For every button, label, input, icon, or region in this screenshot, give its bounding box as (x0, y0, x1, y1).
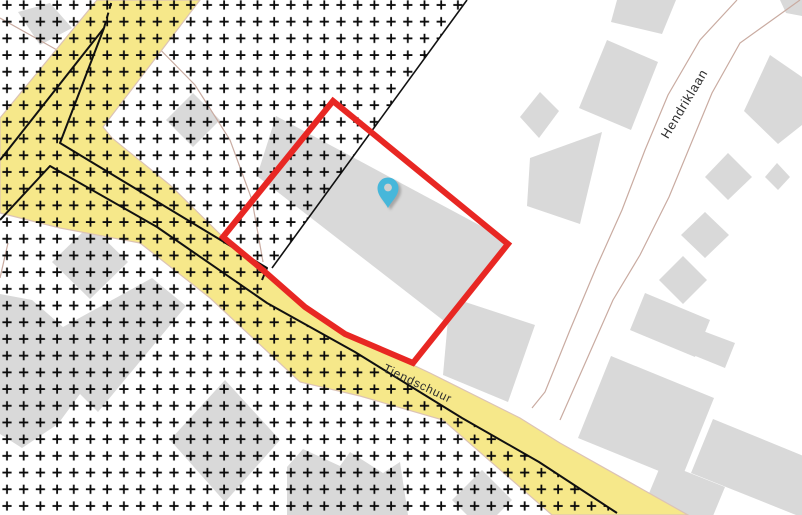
pin-hole (384, 184, 392, 192)
map-canvas[interactable]: Tiendschuur Hendriklaan (0, 0, 802, 515)
map-svg: Tiendschuur Hendriklaan (0, 0, 802, 515)
